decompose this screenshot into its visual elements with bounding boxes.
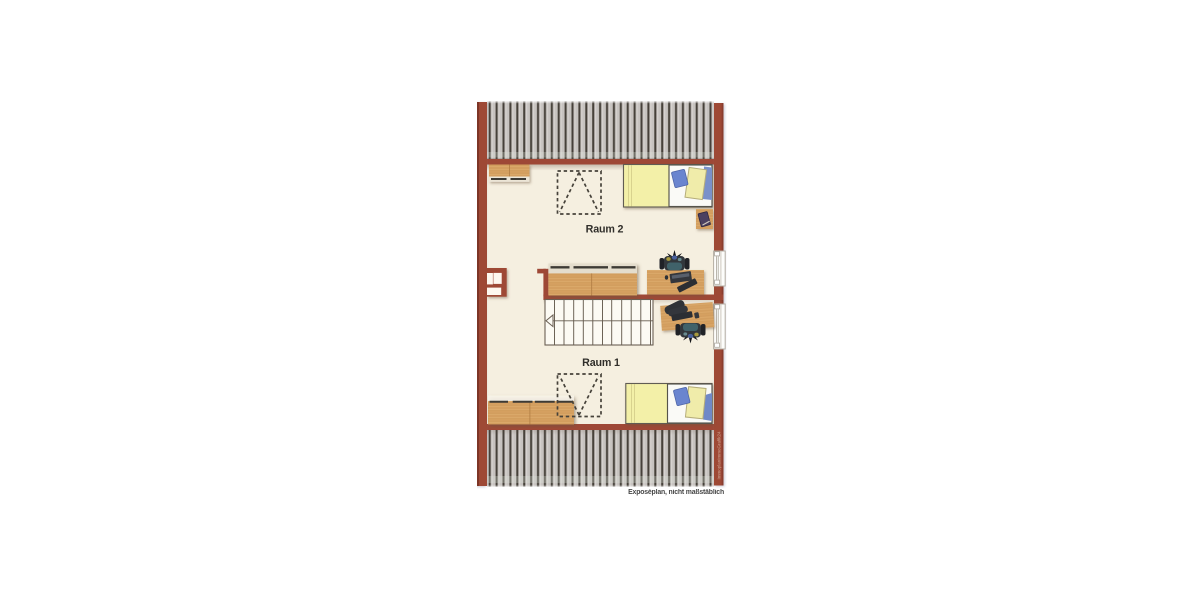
svg-text:ImmoplanImmoGrafik24: ImmoplanImmoGrafik24 [717,431,722,480]
svg-text:Raum 2: Raum 2 [586,224,624,236]
svg-text:Raum 1: Raum 1 [582,357,620,369]
